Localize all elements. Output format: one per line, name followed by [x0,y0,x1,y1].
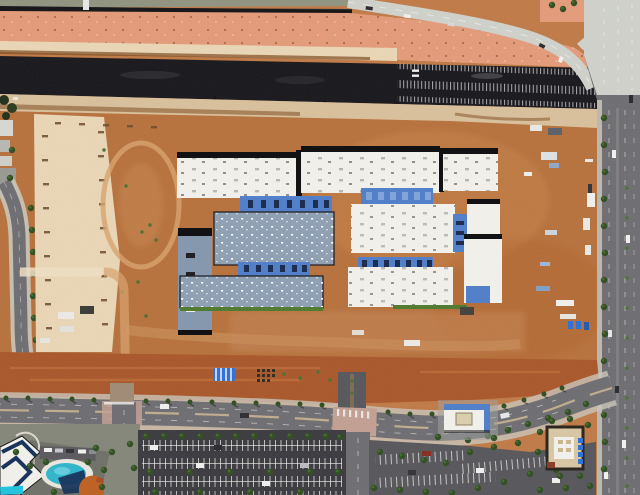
photo-grain-overlay [0,0,640,495]
aerial-photo-canvas [0,0,640,495]
aerial-photo-construction-site [0,0,640,495]
